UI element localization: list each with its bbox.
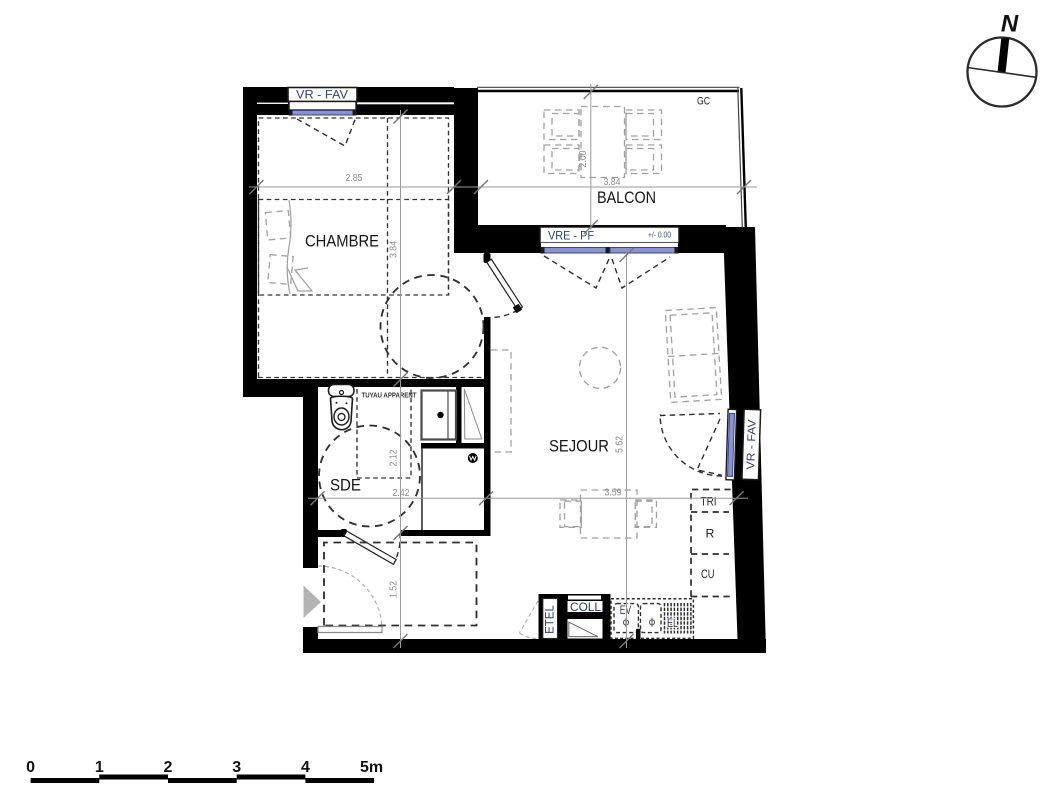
svg-text:SEJOUR: SEJOUR [549,438,609,456]
svg-text:R: R [706,527,715,541]
svg-text:SDE: SDE [330,477,361,495]
svg-text:TRI: TRI [701,495,717,509]
svg-text:N: N [1001,11,1019,38]
svg-text:ETEL: ETEL [544,605,556,634]
svg-text:2.85: 2.85 [346,173,363,184]
svg-text:0: 0 [26,759,35,776]
svg-text:3.84: 3.84 [604,177,621,188]
svg-text:1.52: 1.52 [389,581,400,598]
svg-text:CU: CU [701,567,715,581]
svg-text:5.62: 5.62 [615,436,626,453]
svg-text:2.12: 2.12 [389,449,400,466]
svg-text:2: 2 [164,759,173,776]
svg-text:GC: GC [697,96,710,108]
svg-text:4: 4 [301,759,310,776]
svg-text:EV: EV [620,605,632,617]
svg-text:+/- 0.00: +/- 0.00 [648,230,671,240]
svg-text:VRE - PF: VRE - PF [548,231,594,243]
svg-text:3.59: 3.59 [605,488,622,499]
svg-text:3.84: 3.84 [389,241,400,258]
svg-text:VR - FAV: VR - FAV [296,90,348,102]
svg-text:5m: 5m [360,759,383,776]
svg-text:VR - FAV: VR - FAV [745,419,759,470]
svg-text:BALCON: BALCON [597,188,656,207]
svg-text:2.42: 2.42 [393,488,410,499]
svg-text:2.00: 2.00 [578,150,589,167]
svg-text:1: 1 [95,759,104,776]
svg-text:EL: EL [667,618,678,630]
svg-text:3: 3 [232,759,241,776]
svg-text:CHAMBRE: CHAMBRE [305,233,379,251]
svg-text:TUYAU APPARENT: TUYAU APPARENT [362,393,418,400]
svg-text:COLL: COLL [570,602,602,614]
